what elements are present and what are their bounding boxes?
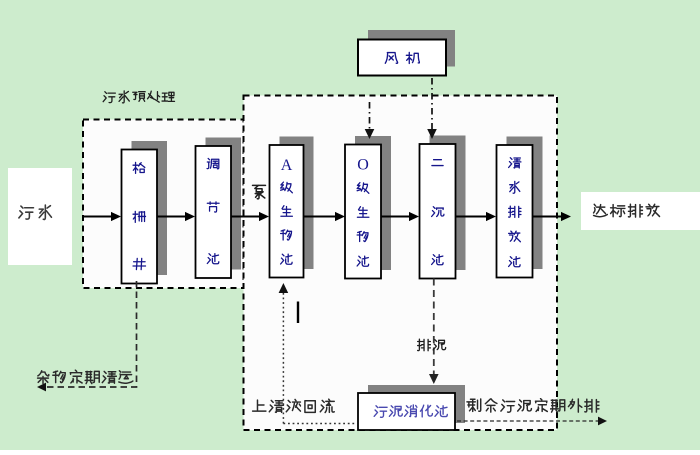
- svg-text:O: O: [357, 157, 369, 174]
- svg-text:A: A: [281, 157, 293, 174]
